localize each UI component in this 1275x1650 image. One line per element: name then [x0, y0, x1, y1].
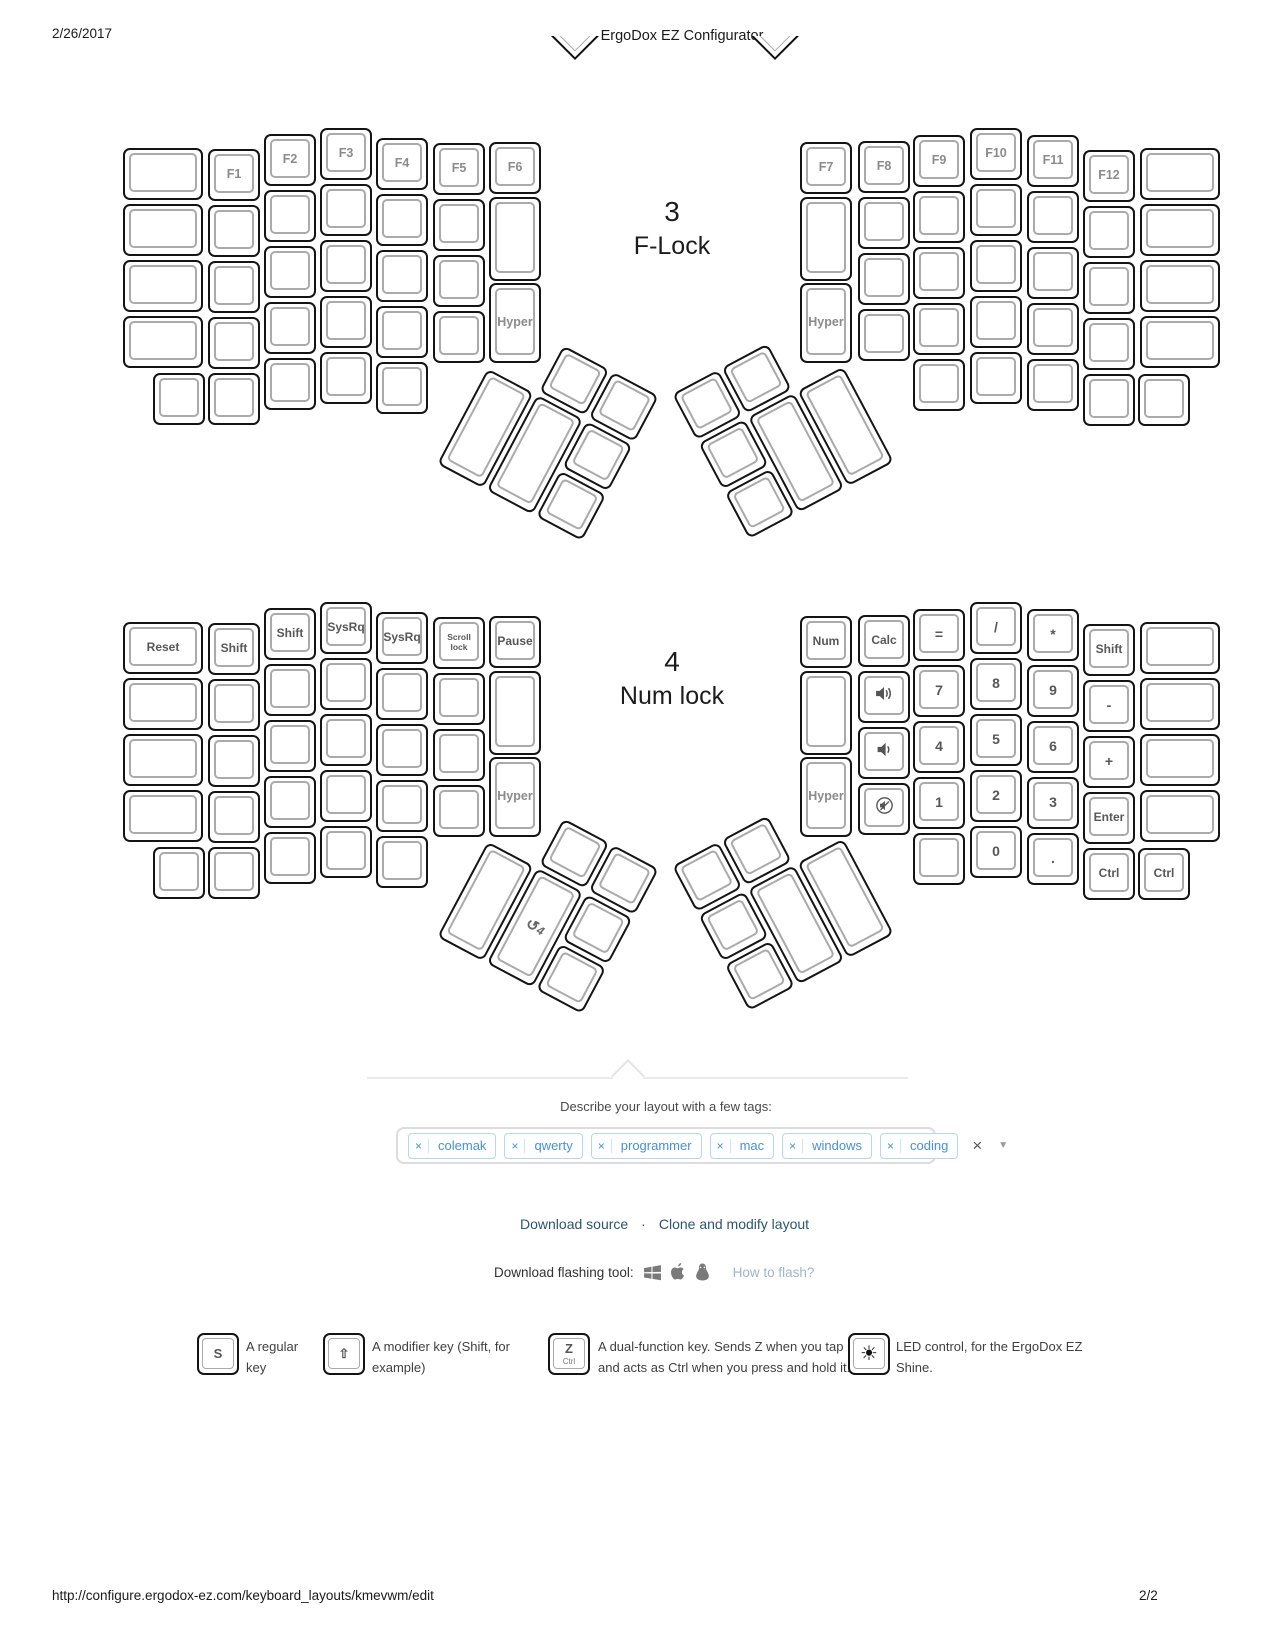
- keytop: [864, 788, 904, 827]
- divider-caret: [611, 1059, 645, 1093]
- volume-down-icon: [876, 741, 892, 763]
- key-2[interactable]: 2: [970, 770, 1022, 822]
- key-blank[interactable]: [208, 679, 260, 731]
- keytop: Ctrl: [1144, 853, 1184, 892]
- key-label: F3: [339, 146, 354, 160]
- key-f12[interactable]: F12: [1083, 150, 1135, 202]
- key-blank[interactable]: [376, 668, 428, 720]
- key-blank[interactable]: [208, 317, 260, 369]
- layer-number: 4: [664, 646, 680, 678]
- key-blank[interactable]: [123, 260, 203, 312]
- keytop: [1033, 308, 1073, 347]
- tag-pill: ×qwerty: [504, 1133, 582, 1159]
- keytop: 3: [1033, 782, 1073, 821]
- key-label: Num: [813, 634, 840, 648]
- key-blank[interactable]: [376, 194, 428, 246]
- remove-tag-icon[interactable]: ×: [881, 1139, 901, 1153]
- key-blank[interactable]: [264, 832, 316, 884]
- key-blank[interactable]: [376, 836, 428, 888]
- key-blank[interactable]: [913, 303, 965, 355]
- dropdown-caret-icon[interactable]: ▼: [998, 1140, 1008, 1151]
- key-calc[interactable]: Calc: [858, 615, 910, 667]
- key-sysrq[interactable]: SysRq: [320, 602, 372, 654]
- key-blank[interactable]: [1027, 191, 1079, 243]
- keytop: [129, 153, 197, 192]
- keytop: [326, 719, 366, 758]
- key-period[interactable]: .: [1027, 833, 1079, 885]
- keytop: Num: [806, 621, 846, 660]
- key-label: F1: [227, 167, 242, 181]
- layer-number: 3: [664, 196, 680, 228]
- keytop: [326, 775, 366, 814]
- key-blank[interactable]: [970, 184, 1022, 236]
- key-label: F11: [1043, 153, 1064, 167]
- key-asterisk[interactable]: *: [1027, 609, 1079, 661]
- key-blank[interactable]: [376, 724, 428, 776]
- key-blank[interactable]: [320, 296, 372, 348]
- key-blank[interactable]: [433, 729, 485, 781]
- key-blank[interactable]: [123, 678, 203, 730]
- key-blank[interactable]: [970, 240, 1022, 292]
- page-title: ErgoDox EZ Configurator: [601, 28, 764, 44]
- key-blank[interactable]: [433, 255, 485, 307]
- key-blank[interactable]: [1083, 318, 1135, 370]
- keytop: [706, 426, 760, 479]
- key-blank[interactable]: [123, 316, 203, 368]
- keytop: 5: [976, 719, 1016, 758]
- key-enter[interactable]: Enter: [1083, 792, 1135, 844]
- key-ctrl[interactable]: Ctrl: [1083, 848, 1135, 900]
- keytop: [1089, 267, 1129, 306]
- key-blank[interactable]: [1140, 148, 1220, 200]
- keytop: -: [1089, 685, 1129, 724]
- keytop: [545, 478, 599, 531]
- key-label: Ctrl: [1154, 866, 1175, 880]
- linux-icon[interactable]: [695, 1263, 710, 1281]
- key-1[interactable]: 1: [913, 777, 965, 829]
- flash-tool-label: Download flashing tool:: [494, 1265, 634, 1280]
- key-blank[interactable]: [1027, 247, 1079, 299]
- key-label: 1: [935, 794, 943, 810]
- key-blank[interactable]: [153, 847, 205, 899]
- keytop: [382, 673, 422, 712]
- key-label: SysRq: [327, 620, 364, 634]
- key-blank[interactable]: [489, 671, 541, 755]
- key-label: 2: [992, 787, 1000, 803]
- keytop: 8: [976, 663, 1016, 702]
- keytop: F7: [806, 147, 846, 186]
- tag-label: mac: [731, 1138, 774, 1153]
- key-blank[interactable]: [913, 359, 965, 411]
- header-date: 2/26/2017: [52, 26, 112, 41]
- key-label: F7: [819, 160, 834, 174]
- clone-layout-link[interactable]: Clone and modify layout: [659, 1216, 809, 1232]
- keytop: F3: [326, 133, 366, 172]
- keytop: Reset: [129, 627, 197, 666]
- key-blank[interactable]: [320, 658, 372, 710]
- key-label: -: [1107, 697, 1112, 713]
- keytop: [729, 351, 783, 404]
- legend-key-glyph: Z: [565, 1342, 573, 1355]
- key-9[interactable]: 9: [1027, 665, 1079, 717]
- key-f5[interactable]: F5: [433, 143, 485, 195]
- keytop: [571, 901, 625, 954]
- keytop: [1033, 196, 1073, 235]
- how-to-flash-link[interactable]: How to flash?: [733, 1265, 815, 1280]
- key-blank[interactable]: [1083, 206, 1135, 258]
- keytop: [706, 898, 760, 951]
- key-label: 4: [935, 738, 943, 754]
- key-blank[interactable]: [1083, 262, 1135, 314]
- key-6[interactable]: 6: [1027, 721, 1079, 773]
- key-equals[interactable]: =: [913, 609, 965, 661]
- keytop: 1: [919, 782, 959, 821]
- key-blank[interactable]: [320, 826, 372, 878]
- keytop: [326, 831, 366, 870]
- key-blank[interactable]: [1140, 678, 1220, 730]
- key-label: Reset: [147, 640, 180, 654]
- key-blank[interactable]: [123, 790, 203, 842]
- key-blank[interactable]: [913, 247, 965, 299]
- key-f8[interactable]: F8: [858, 141, 910, 193]
- keytop: [214, 796, 254, 835]
- keytop: [976, 245, 1016, 284]
- tag-pill: ×mac: [710, 1133, 775, 1159]
- keytop: [976, 301, 1016, 340]
- key-label: F5: [452, 161, 467, 175]
- keytop: [270, 837, 310, 876]
- cutoff-key-tip: [745, 36, 801, 76]
- key-blank[interactable]: [1140, 316, 1220, 368]
- key-label: Enter: [1094, 810, 1125, 824]
- remove-tag-icon[interactable]: ×: [711, 1139, 731, 1153]
- key-blank[interactable]: [800, 197, 852, 281]
- legend-keycap-3: ☀: [848, 1333, 890, 1375]
- key-blank[interactable]: [433, 199, 485, 251]
- footer-page-number: 2/2: [1139, 1588, 1158, 1603]
- keytop: [439, 734, 479, 773]
- tag-label: coding: [901, 1138, 957, 1153]
- keytop: [382, 841, 422, 880]
- key-label: Calc: [871, 633, 896, 647]
- keytop: [729, 823, 783, 876]
- printed-page: 2/26/2017 ErgoDox EZ Configurator 3F-Loc…: [0, 0, 1275, 1650]
- keytop: [495, 676, 535, 747]
- key-blank[interactable]: [1140, 734, 1220, 786]
- key-shift[interactable]: Shift: [264, 608, 316, 660]
- key-blank[interactable]: [376, 780, 428, 832]
- key-blank[interactable]: [264, 190, 316, 242]
- keytop: [545, 951, 599, 1004]
- cutoff-key-tip: [545, 36, 601, 76]
- key-f1[interactable]: F1: [208, 149, 260, 201]
- key-blank[interactable]: [970, 296, 1022, 348]
- keytop: [382, 367, 422, 406]
- keytop: [382, 785, 422, 824]
- key-f11[interactable]: F11: [1027, 135, 1079, 187]
- key-f9[interactable]: F9: [913, 135, 965, 187]
- key-7[interactable]: 7: [913, 665, 965, 717]
- keytop: [439, 260, 479, 299]
- keytop: Ctrl: [1089, 853, 1129, 892]
- keytop: [680, 377, 734, 430]
- legend-key-glyph: ⇧: [339, 1347, 350, 1360]
- key-f3[interactable]: F3: [320, 128, 372, 180]
- volume-up-icon: [875, 685, 894, 707]
- download-source-link[interactable]: Download source: [520, 1216, 628, 1232]
- key-blank[interactable]: [264, 776, 316, 828]
- key-f4[interactable]: F4: [376, 138, 428, 190]
- remove-tag-icon[interactable]: ×: [783, 1139, 803, 1153]
- keytop: [326, 245, 366, 284]
- keytop: [571, 428, 625, 481]
- key-blank[interactable]: [1140, 204, 1220, 256]
- key-ctrl[interactable]: Ctrl: [1138, 848, 1190, 900]
- legend-text: A dual-function key. Sends Z when you ta…: [598, 1336, 857, 1378]
- key-blank[interactable]: [913, 191, 965, 243]
- keytop: [1146, 739, 1214, 778]
- tag-pill: ×windows: [782, 1133, 872, 1159]
- keytop: F9: [919, 140, 959, 179]
- keytop: 7: [919, 670, 959, 709]
- key-blank[interactable]: [1027, 303, 1079, 355]
- legend-key-subglyph: Ctrl: [563, 1358, 575, 1366]
- key-shift[interactable]: Shift: [1083, 624, 1135, 676]
- keytop: [1146, 209, 1214, 248]
- key-blank[interactable]: [208, 205, 260, 257]
- keytop: F4: [382, 143, 422, 182]
- keytop: [919, 364, 959, 403]
- key-label: F4: [395, 156, 410, 170]
- key-blank[interactable]: [153, 373, 205, 425]
- keytop: [806, 676, 846, 747]
- key-blank[interactable]: [376, 362, 428, 414]
- key-blank[interactable]: [858, 253, 910, 305]
- key-num[interactable]: Num: [800, 616, 852, 668]
- key-blank[interactable]: [320, 184, 372, 236]
- keytop: [439, 204, 479, 243]
- key-label: .: [1051, 850, 1055, 866]
- keytop: Shift: [1089, 629, 1129, 668]
- key-blank[interactable]: [913, 833, 965, 885]
- keytop: [129, 795, 197, 834]
- remove-tag-icon[interactable]: ×: [592, 1139, 612, 1153]
- key-label: F10: [985, 146, 1007, 160]
- key-4[interactable]: 4: [913, 721, 965, 773]
- remove-tag-icon[interactable]: ×: [505, 1139, 525, 1153]
- key-label: SysRq: [383, 630, 420, 644]
- key-5[interactable]: 5: [970, 714, 1022, 766]
- keytop: [495, 202, 535, 273]
- keytop: Shift: [270, 613, 310, 652]
- keytop: [129, 321, 197, 360]
- legend-keycap-0: S: [197, 1333, 239, 1375]
- keytop: [732, 476, 786, 529]
- keytop: [598, 852, 652, 905]
- key-blank[interactable]: [1140, 790, 1220, 842]
- key-blank[interactable]: [433, 673, 485, 725]
- keytop: [864, 314, 904, 353]
- key-blank[interactable]: [264, 720, 316, 772]
- key-reset[interactable]: Reset: [123, 622, 203, 674]
- windows-icon[interactable]: [643, 1264, 662, 1281]
- keytop: [270, 363, 310, 402]
- key-label: Shift: [1096, 642, 1123, 656]
- keytop: [214, 322, 254, 361]
- tags-input[interactable]: ×colemak×qwerty×programmer×mac×windows×c…: [396, 1127, 936, 1164]
- keytop: [1146, 627, 1214, 666]
- key-0[interactable]: 0: [970, 826, 1022, 878]
- keytop: [382, 729, 422, 768]
- key-blank[interactable]: [208, 735, 260, 787]
- key-label: Shift: [221, 641, 248, 655]
- tag-label: colemak: [429, 1138, 495, 1153]
- key-blank[interactable]: [320, 714, 372, 766]
- keytop: 9: [1033, 670, 1073, 709]
- key-label: Scroll lock: [447, 632, 471, 652]
- keytop: [214, 378, 254, 417]
- key-volume-down-icon[interactable]: [858, 727, 910, 779]
- keytop: [270, 781, 310, 820]
- key-shift[interactable]: Shift: [208, 623, 260, 675]
- key-blank[interactable]: [433, 311, 485, 363]
- key-blank[interactable]: [123, 204, 203, 256]
- keytop: [919, 196, 959, 235]
- keytop: F10: [976, 133, 1016, 172]
- key-blank[interactable]: [800, 671, 852, 755]
- keytop: [806, 202, 846, 273]
- key-label: 8: [992, 675, 1000, 691]
- key-blank[interactable]: [208, 791, 260, 843]
- keytop: [598, 379, 652, 432]
- key-blank[interactable]: [264, 664, 316, 716]
- key-blank[interactable]: [1083, 374, 1135, 426]
- tag-label: programmer: [612, 1138, 701, 1153]
- key-blank[interactable]: [970, 352, 1022, 404]
- keytop: Shift: [214, 628, 254, 667]
- key-label: 0: [992, 843, 1000, 859]
- key-blank[interactable]: [208, 847, 260, 899]
- keytop: [439, 790, 479, 829]
- keytop: [1146, 321, 1214, 360]
- keytop: [382, 255, 422, 294]
- key-blank[interactable]: [264, 358, 316, 410]
- key-scroll-lock[interactable]: Scroll lock: [433, 617, 485, 669]
- keytop: F5: [439, 148, 479, 187]
- keytop: [129, 265, 197, 304]
- keytop: [1089, 323, 1129, 362]
- key-8[interactable]: 8: [970, 658, 1022, 710]
- keytop: SysRq: [326, 607, 366, 646]
- keytop: [214, 740, 254, 779]
- keytop: [439, 316, 479, 355]
- key-f7[interactable]: F7: [800, 142, 852, 194]
- keytop: [129, 683, 197, 722]
- key-3[interactable]: 3: [1027, 777, 1079, 829]
- key-blank[interactable]: [858, 309, 910, 361]
- keytop: [129, 739, 197, 778]
- keytop: [159, 378, 199, 417]
- key-blank[interactable]: [208, 261, 260, 313]
- key-blank[interactable]: [433, 785, 485, 837]
- key-label: *: [1050, 626, 1055, 642]
- apple-icon[interactable]: [671, 1263, 686, 1281]
- link-separator: ·: [641, 1216, 646, 1232]
- keytop: [326, 189, 366, 228]
- key-minus[interactable]: -: [1083, 680, 1135, 732]
- key-blank[interactable]: [320, 240, 372, 292]
- key-blank[interactable]: [208, 373, 260, 425]
- key-label: 3: [1049, 794, 1057, 810]
- keytop: [919, 252, 959, 291]
- keytop: .: [1033, 838, 1073, 877]
- keytop: [382, 199, 422, 238]
- key-label: +: [1105, 753, 1113, 769]
- key-blank[interactable]: [376, 250, 428, 302]
- keytop: [1146, 265, 1214, 304]
- key-blank[interactable]: [858, 197, 910, 249]
- layer-name: Num lock: [620, 682, 724, 711]
- legend-text: A modifier key (Shift, forexample): [372, 1336, 510, 1378]
- keytop: [214, 266, 254, 305]
- key-plus[interactable]: +: [1083, 736, 1135, 788]
- tag-pill: ×coding: [880, 1133, 958, 1159]
- keytop: [919, 308, 959, 347]
- keytop: 4: [919, 726, 959, 765]
- key-blank[interactable]: [264, 302, 316, 354]
- keytop: [976, 357, 1016, 396]
- tag-pill: ×programmer: [591, 1133, 702, 1159]
- keytop: [214, 852, 254, 891]
- keytop: =: [919, 614, 959, 653]
- key-blank[interactable]: [320, 770, 372, 822]
- keytop: F11: [1033, 140, 1073, 179]
- layer-toggle-icon: ↺4: [523, 914, 548, 939]
- key-blank[interactable]: [1138, 374, 1190, 426]
- footer-url: http://configure.ergodox-ez.com/keyboard…: [52, 1588, 434, 1603]
- key-blank[interactable]: [1027, 359, 1079, 411]
- keytop: [1033, 252, 1073, 291]
- key-blank[interactable]: [489, 197, 541, 281]
- key-blank[interactable]: [264, 246, 316, 298]
- keytop: [159, 852, 199, 891]
- key-blank[interactable]: [123, 148, 203, 200]
- key-pause[interactable]: Pause: [489, 616, 541, 668]
- key-blank[interactable]: [1140, 622, 1220, 674]
- keytop: [439, 678, 479, 717]
- key-mute-icon[interactable]: [858, 783, 910, 835]
- keytop: Scroll lock: [439, 622, 479, 661]
- remove-tag-icon[interactable]: ×: [409, 1139, 429, 1153]
- key-volume-up-icon[interactable]: [858, 671, 910, 723]
- key-f10[interactable]: F10: [970, 128, 1022, 180]
- key-sysrq[interactable]: SysRq: [376, 612, 428, 664]
- key-blank[interactable]: [1140, 260, 1220, 312]
- clear-tags-icon[interactable]: ×: [972, 1136, 982, 1156]
- keytop: [270, 307, 310, 346]
- key-f6[interactable]: F6: [489, 142, 541, 194]
- keytop: [1089, 211, 1129, 250]
- key-blank[interactable]: [123, 734, 203, 786]
- keytop: [864, 258, 904, 297]
- keytop: +: [1089, 741, 1129, 780]
- keytop: [864, 676, 904, 715]
- legend-keycap-1: ⇧: [323, 1333, 365, 1375]
- key-blank[interactable]: [320, 352, 372, 404]
- key-f2[interactable]: F2: [264, 134, 316, 186]
- key-blank[interactable]: [376, 306, 428, 358]
- key-slash[interactable]: /: [970, 602, 1022, 654]
